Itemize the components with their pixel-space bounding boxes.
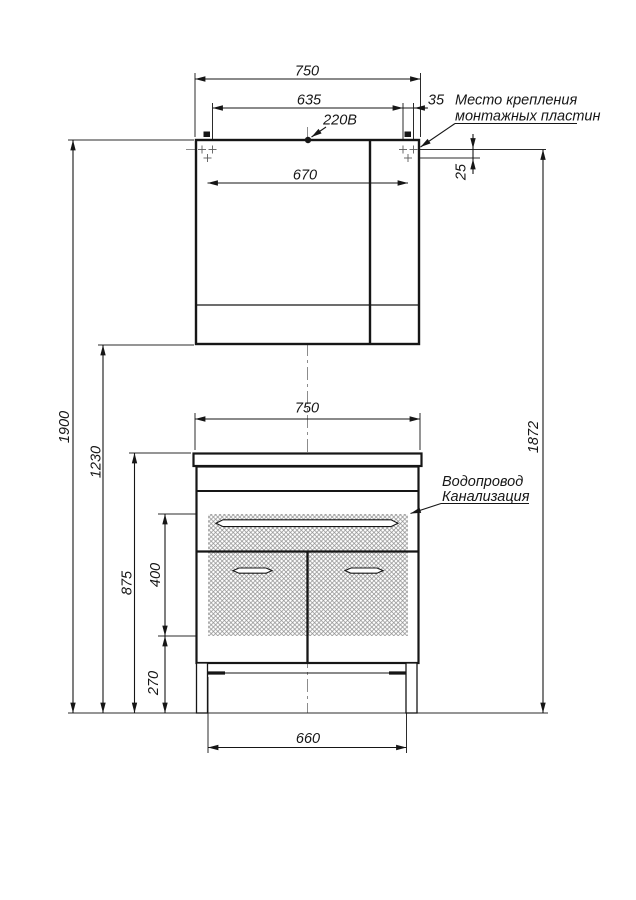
vanity-leg-right xyxy=(406,663,417,713)
dim-text-1900: 1900 xyxy=(57,411,73,443)
vanity-leg-left xyxy=(197,663,208,713)
dim-text-750-vanity: 750 xyxy=(295,401,319,417)
label-sewerage: Канализация xyxy=(442,489,530,505)
dim-text-25: 25 xyxy=(454,163,470,181)
label-mounting-line1: Место крепления xyxy=(455,93,577,109)
technical-drawing-page: 750 635 35 670 25 1872 1900 1230 875 400… xyxy=(0,0,636,900)
dim-text-670: 670 xyxy=(293,168,317,184)
dim-text-400: 400 xyxy=(148,563,164,587)
drawer-handle-slot xyxy=(216,520,398,527)
label-water-supply: Водопровод xyxy=(442,474,523,490)
power-socket-point xyxy=(305,137,311,143)
dim-text-270: 270 xyxy=(146,671,162,696)
dim-text-875: 875 xyxy=(120,570,136,595)
dim-text-660: 660 xyxy=(296,731,320,747)
mounting-plate-left xyxy=(204,132,211,138)
mounting-plate-right xyxy=(405,132,412,138)
mirror-cabinet xyxy=(196,132,419,345)
door-handle-left xyxy=(233,568,272,573)
dim-text-35: 35 xyxy=(428,93,445,109)
label-220v: 220В xyxy=(322,113,357,129)
dim-text-635: 635 xyxy=(297,93,322,109)
dim-text-750-top: 750 xyxy=(295,64,319,80)
label-mounting-line2: монтажных пластин xyxy=(455,109,600,125)
dim-text-1230: 1230 xyxy=(89,446,105,478)
installation-drawing: 750 635 35 670 25 1872 1900 1230 875 400… xyxy=(0,0,636,900)
door-handle-right xyxy=(345,568,383,573)
dim-text-1872: 1872 xyxy=(526,421,542,453)
vanity-countertop xyxy=(194,454,422,467)
